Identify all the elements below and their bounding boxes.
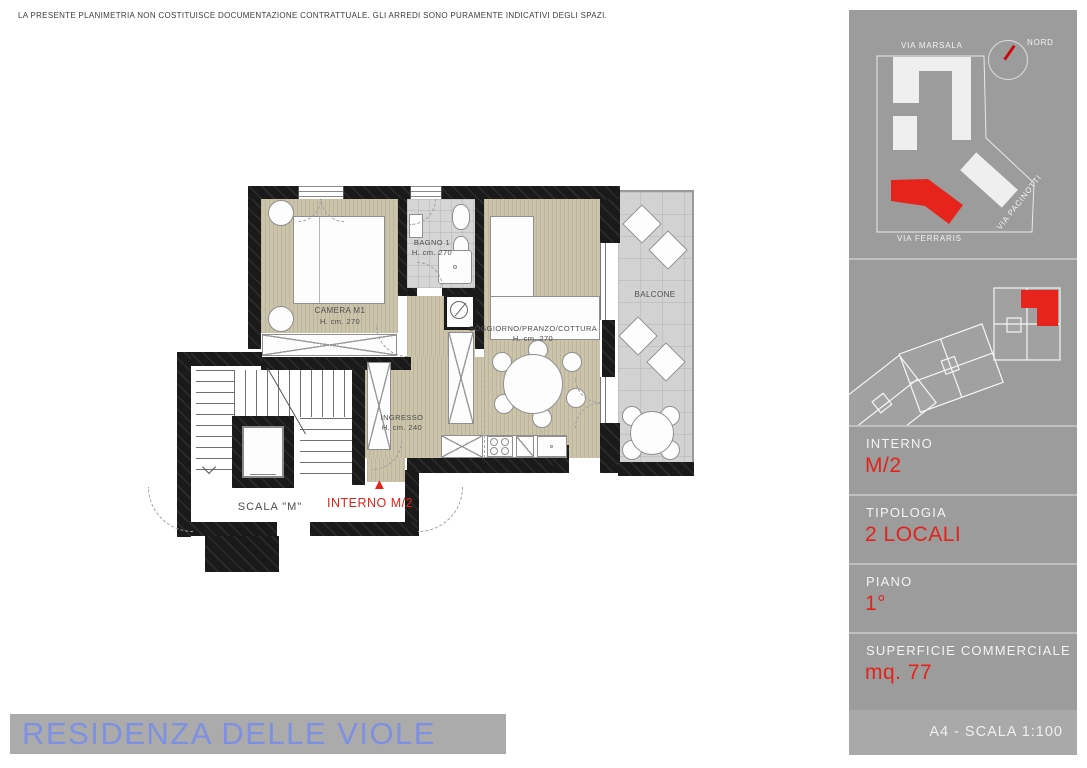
kitchen-sink-drain xyxy=(550,445,553,448)
info-label: INTERNO xyxy=(866,436,933,451)
wardrobe xyxy=(262,334,397,356)
disclaimer-text: LA PRESENTE PLANIMETRIA NON COSTITUISCE … xyxy=(18,11,607,20)
bed xyxy=(293,216,385,304)
building-footprint xyxy=(952,57,971,140)
sidebar: VIA MARSALA VIA FERRARIS VIA PACINOTTI N… xyxy=(849,10,1077,755)
glass-door xyxy=(600,377,606,425)
wall-segment xyxy=(600,423,620,473)
bed-pillow-line xyxy=(319,217,320,303)
wall-segment xyxy=(602,320,615,377)
wall-segment xyxy=(407,458,557,473)
project-title: RESIDENZA DELLE VIOLE xyxy=(10,714,506,754)
stair-flight xyxy=(234,370,352,417)
room-label-ingresso: INGRESSO H. cm. 240 xyxy=(370,413,434,433)
street-label-ferraris: VIA FERRARIS xyxy=(897,234,962,243)
key-plan-drawing xyxy=(849,260,1077,425)
room-name: CAMERA M1 xyxy=(315,306,366,315)
site-map: VIA MARSALA VIA FERRARIS VIA PACINOTTI N… xyxy=(849,10,1077,258)
burner xyxy=(490,438,498,446)
balcony-table xyxy=(630,411,674,455)
title-band: RESIDENZA DELLE VIOLE xyxy=(10,714,506,754)
compass-needle-icon xyxy=(1003,45,1015,60)
street-label-marsala: VIA MARSALA xyxy=(901,41,963,50)
toilet xyxy=(452,204,470,230)
room-height: H. cm. 270 xyxy=(513,334,553,343)
info-label: TIPOLOGIA xyxy=(866,505,947,520)
building-footprint xyxy=(893,116,917,150)
room-name: BALCONE xyxy=(634,290,675,299)
room-label-scala: SCALA "M" xyxy=(205,501,335,513)
closet xyxy=(448,332,474,424)
wall-segment xyxy=(352,366,365,485)
room-label-bagno: BAGNO 1 H. cm. 270 xyxy=(402,238,462,258)
dishwasher xyxy=(516,436,534,457)
key-plan xyxy=(849,258,1077,423)
dining-table xyxy=(503,354,563,414)
glass-wall xyxy=(600,243,606,320)
elevator-door-line xyxy=(250,474,276,477)
sheet-footer: A4 - SCALA 1:100 xyxy=(849,710,1077,755)
info-box-tipologia: TIPOLOGIA 2 LOCALI xyxy=(849,494,1077,560)
room-height: H. cm. 270 xyxy=(320,317,360,326)
room-label-soggiorno: SOGGIORNO/PRANZO/COTTURA H. cm. 270 xyxy=(468,324,598,344)
room-label-balcone: BALCONE xyxy=(618,290,692,301)
wall-segment xyxy=(310,522,419,536)
plan-sheet: LA PRESENTE PLANIMETRIA NON COSTITUISCE … xyxy=(0,0,1087,768)
info-label: PIANO xyxy=(866,574,912,589)
stair-flight xyxy=(300,418,352,477)
room-name: SOGGIORNO/PRANZO/COTTURA xyxy=(469,324,597,333)
room-name: BAGNO 1 xyxy=(414,238,450,247)
highlighted-building xyxy=(891,179,963,224)
floor-joint-line xyxy=(484,350,485,458)
wall-segment xyxy=(618,462,694,476)
room-height: H. cm. 240 xyxy=(382,423,422,432)
wall-segment xyxy=(248,199,261,349)
room-label-camera: CAMERA M1 H. cm. 270 xyxy=(280,306,400,328)
info-box-superficie: SUPERFICIE COMMERCIALE mq. 77 xyxy=(849,632,1077,710)
info-value: 2 LOCALI xyxy=(865,523,961,547)
info-value: M/2 xyxy=(865,454,902,478)
entrance-label: INTERNO M/2 xyxy=(320,496,420,510)
kitchen-cabinet xyxy=(441,435,483,458)
window xyxy=(298,186,344,199)
sheet-scale: A4 - SCALA 1:100 xyxy=(929,724,1063,740)
closet xyxy=(367,362,391,450)
shower-drain xyxy=(453,265,457,269)
compass xyxy=(988,40,1028,80)
info-box-piano: PIANO 1° xyxy=(849,563,1077,629)
building-footprint xyxy=(893,57,919,103)
room-height: H. cm. 270 xyxy=(412,248,452,257)
compass-label: NORD xyxy=(1027,38,1054,47)
room-name: INGRESSO xyxy=(381,413,424,422)
wall-segment xyxy=(600,199,620,243)
burner xyxy=(501,447,509,455)
entrance-arrow-icon: ▲ xyxy=(372,477,387,492)
sofa xyxy=(490,216,534,308)
dining-chair xyxy=(562,352,582,372)
door-swing xyxy=(148,487,193,532)
elevator-cab xyxy=(242,426,284,478)
info-box-interno: INTERNO M/2 xyxy=(849,425,1077,491)
wall-segment xyxy=(205,536,279,572)
burner xyxy=(501,438,509,446)
wall-segment xyxy=(407,288,417,296)
burner xyxy=(490,447,498,455)
info-value: 1° xyxy=(865,592,886,616)
window xyxy=(410,186,442,199)
info-value: mq. 77 xyxy=(865,661,932,685)
stair-flight xyxy=(196,370,234,477)
info-label: SUPERFICIE COMMERCIALE xyxy=(866,643,1071,658)
nightstand xyxy=(268,200,294,226)
door-swing xyxy=(418,487,463,532)
